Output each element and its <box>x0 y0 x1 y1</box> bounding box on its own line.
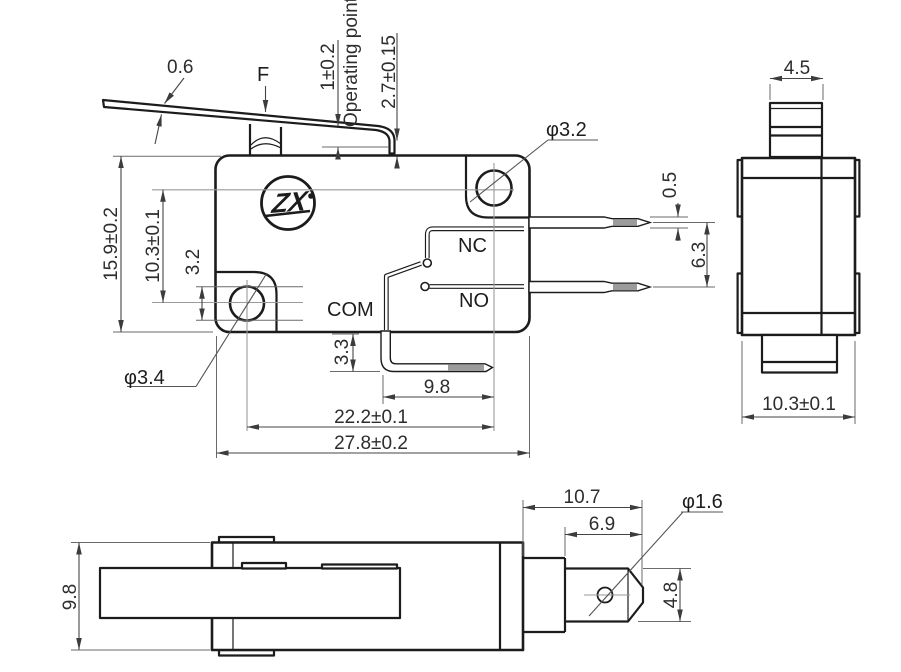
dim-label-hole-offset: 3.2 <box>183 249 204 275</box>
blade-detail-1 <box>242 563 286 569</box>
dim-label-hole-pitch-h: 22.2±0.1 <box>334 407 408 428</box>
technical-drawing-canvas: ZX <box>0 0 901 672</box>
dim-label-com-drop: 3.3 <box>332 339 353 365</box>
no-contact-point <box>421 283 429 291</box>
operating-point-label: Operating point <box>341 0 362 127</box>
dim-label-com-length: 9.8 <box>424 377 450 398</box>
front-view: ZX <box>101 0 715 458</box>
dim-label-lever-thickness: 0.6 <box>167 57 193 78</box>
com-label: COM <box>327 299 374 321</box>
microswitch-drawing: ZX <box>0 0 901 672</box>
dim-label-terminal-flat: 6.9 <box>589 514 615 535</box>
side-bottom-boss <box>762 335 837 373</box>
dim-label-hole-pitch-v: 10.3±0.1 <box>143 209 164 283</box>
bottom-lever-blade <box>100 568 400 618</box>
com-terminal <box>381 331 493 372</box>
dim-label-bottom-depth: 9.8 <box>60 584 81 610</box>
dim-label-operating-height: 2.7±0.15 <box>379 35 400 109</box>
blade-detail-2 <box>322 565 397 569</box>
bottom-terminal <box>523 558 643 632</box>
no-terminal <box>529 282 650 293</box>
dim-label-side-body-width: 10.3±0.1 <box>762 394 836 415</box>
dim-label-terminal-hole-dia: φ1.6 <box>682 491 723 513</box>
nc-contact-point <box>423 259 431 267</box>
side-view: 4.5 10.3±0.1 <box>738 58 860 424</box>
dim-label-top-hole-dia: φ3.2 <box>546 119 587 141</box>
force-label: F <box>257 64 269 86</box>
dim-label-body-length: 27.8±0.2 <box>334 433 408 454</box>
nc-terminal <box>529 217 650 228</box>
side-body <box>742 158 855 335</box>
dim-label-body-height: 15.9±0.2 <box>101 207 122 281</box>
dim-label-plunger-width: 4.5 <box>784 58 810 79</box>
plunger <box>250 124 281 156</box>
dim-label-terminal-width: 4.8 <box>661 582 682 608</box>
nc-label: NC <box>458 235 487 257</box>
dim-label-terminal-length: 10.7 <box>564 487 601 508</box>
dim-label-pretravel: 1±0.2 <box>318 43 339 90</box>
no-label: NO <box>459 290 489 312</box>
side-plunger <box>770 103 822 157</box>
bottom-view: 9.8 10.7 6.9 φ1.6 4.8 <box>60 487 723 656</box>
dim-label-terminal-thickness: 0.5 <box>660 172 681 198</box>
dim-label-terminal-pitch: 6.3 <box>689 242 710 268</box>
dim-label-bottom-hole-dia: φ3.4 <box>124 367 165 389</box>
